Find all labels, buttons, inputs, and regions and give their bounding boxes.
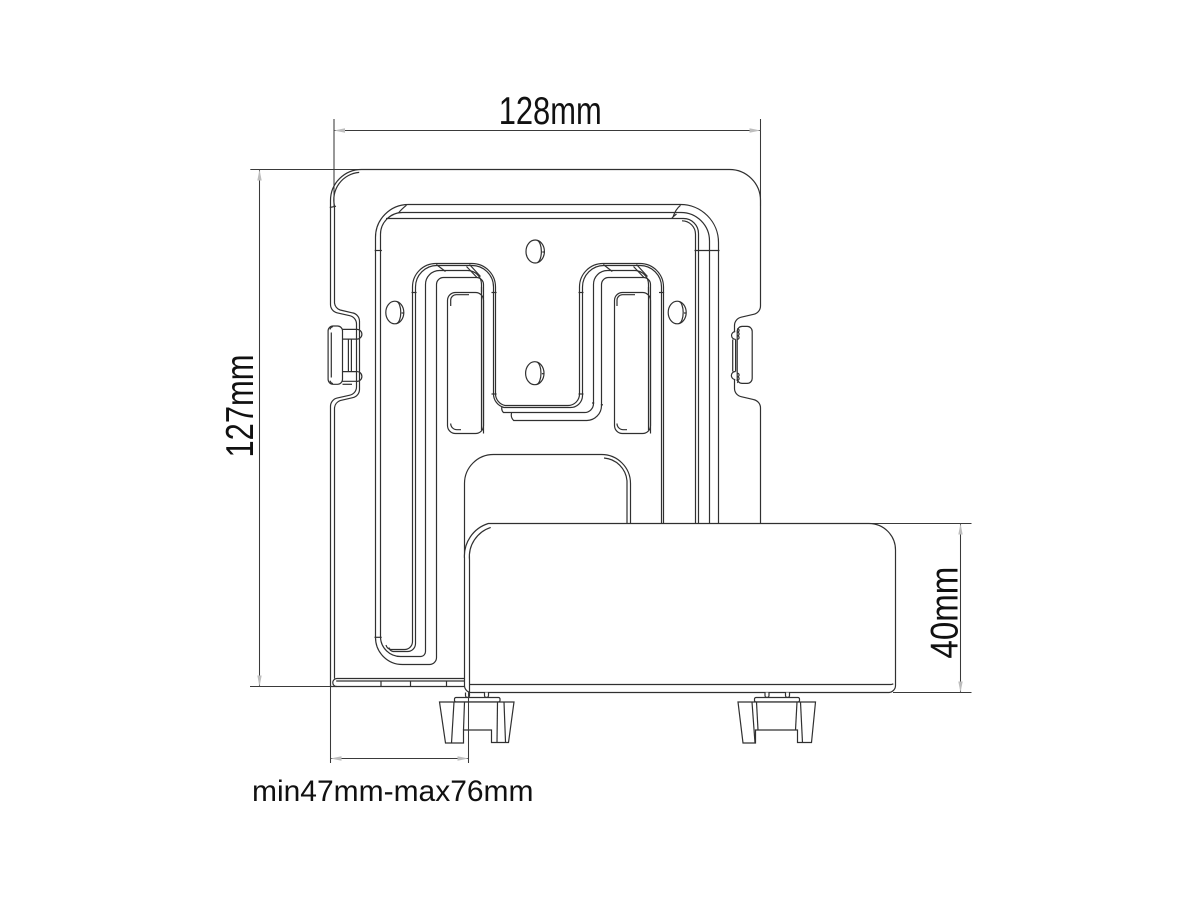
svg-text:40mm: 40mm [923, 567, 966, 659]
svg-text:127mm: 127mm [219, 355, 262, 458]
svg-text:128mm: 128mm [499, 90, 602, 133]
svg-text:min47mm-max76mm: min47mm-max76mm [252, 775, 534, 808]
